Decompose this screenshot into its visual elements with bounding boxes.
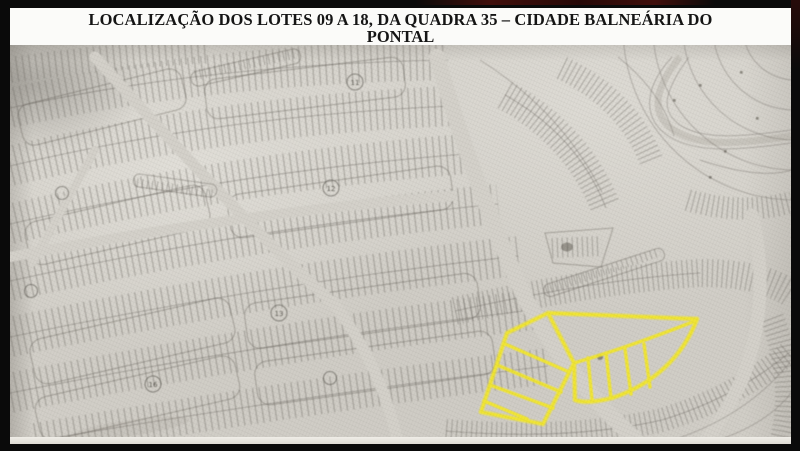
svg-text:13: 13 — [275, 310, 284, 318]
scanned-page-frame: LOCALIZAÇÃO DOS LOTES 09 A 18, DA QUADRA… — [0, 0, 800, 451]
scan-artifact-top — [415, 0, 715, 5]
triangle-block — [545, 228, 613, 267]
scan-artifact-right — [791, 0, 800, 70]
cadastral-map: 11 12 13 16 — [10, 45, 791, 437]
svg-text:11: 11 — [351, 79, 360, 87]
scanner-edge-strip — [10, 437, 791, 444]
highlight-lots-outline — [481, 313, 697, 424]
curved-boulevard — [650, 57, 791, 149]
svg-text:12: 12 — [327, 185, 336, 193]
map-plan-svg: 11 12 13 16 — [10, 45, 791, 437]
title-band: LOCALIZAÇÃO DOS LOTES 09 A 18, DA QUADRA… — [10, 8, 791, 45]
block-badge-11: 11 — [347, 74, 363, 90]
block-badge-12: 12 — [323, 180, 339, 196]
block-badge-13: 13 — [271, 305, 287, 321]
svg-text:16: 16 — [149, 381, 158, 389]
page-title-line-2: PONTAL — [10, 29, 791, 45]
